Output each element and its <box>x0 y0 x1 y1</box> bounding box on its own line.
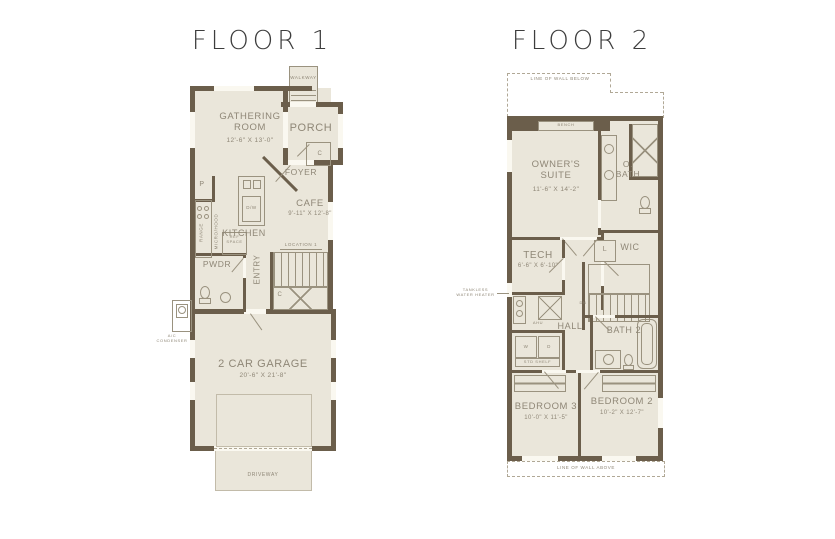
pwdr-door-opening <box>243 258 246 278</box>
line-of-wall-below-label: LINE OF WALL BELOW <box>515 76 605 81</box>
hall-label: HALL <box>550 321 590 331</box>
owners-suite-label: OWNER'S SUITE <box>516 160 596 182</box>
walkway-label: WALKWAY <box>287 75 320 80</box>
dn-label: DN <box>576 301 590 306</box>
dryer-label: D <box>538 344 560 349</box>
bedroom2-label: BEDROOM 2 <box>584 397 660 408</box>
dashed-line-of-wall-below <box>610 73 611 93</box>
island-sink <box>253 180 261 189</box>
porch-entry-opening <box>290 102 316 107</box>
tech-label: TECH <box>508 250 568 262</box>
dashed-line-of-wall-below <box>507 73 610 74</box>
ahu-label: AHU <box>528 321 548 326</box>
bedroom2-dims: 10'-2" X 12'-7" <box>584 410 660 416</box>
stairs-up <box>273 252 328 287</box>
owners-bath-label: O. BATH <box>608 160 648 180</box>
dashed-line-of-wall-below <box>507 73 508 117</box>
bath2-label: BATH 2 <box>596 325 652 335</box>
pwdr-label: PWDR <box>196 260 238 270</box>
ahu-unit <box>538 296 562 320</box>
closet-label: C <box>275 292 285 299</box>
bedroom2-closet <box>602 375 656 392</box>
window <box>190 112 195 148</box>
tankless-dial <box>516 310 523 317</box>
bedroom3-closet <box>514 375 566 392</box>
range-burner <box>204 206 209 211</box>
bedroom3-dims: 10'-0" X 11'-5" <box>508 415 584 421</box>
window <box>214 86 254 91</box>
garage-door-opening <box>244 309 266 314</box>
wall <box>562 333 565 373</box>
range-label: RANGE <box>199 213 208 253</box>
wic-label: WIC <box>612 242 648 252</box>
sink <box>604 144 614 154</box>
suite-door-opening <box>560 237 597 240</box>
dashed-line-of-wall-below <box>663 92 664 118</box>
dishwasher-label: D/W <box>243 205 260 210</box>
stair-location-label: LOCATION 1 <box>275 242 327 247</box>
tankless-pointer-line <box>497 293 509 294</box>
window <box>331 382 336 400</box>
sink <box>220 292 231 303</box>
std-shelf-label: STD SHELF <box>515 360 560 365</box>
stair-location-line <box>280 249 322 250</box>
garage-pad <box>216 394 312 447</box>
floor2-title: FLOOR 2 <box>502 26 662 56</box>
linen-label: L <box>598 246 612 254</box>
driveway-area <box>215 449 312 491</box>
foyer-label: FOYER <box>276 168 326 178</box>
toilet-tank <box>639 208 651 214</box>
obath-door-opening <box>598 200 601 228</box>
floor1-title: FLOOR 1 <box>182 26 342 56</box>
cafe-dims: 9'-11" X 12'-8" <box>280 211 340 217</box>
foyer-closet-label: C <box>314 151 326 158</box>
toilet-tank <box>199 298 211 304</box>
window <box>190 382 195 400</box>
cafe-label: CAFE <box>285 199 335 210</box>
washer-label: W <box>515 344 537 349</box>
ac-condenser-label: A/C CONDENSER <box>150 334 194 343</box>
owners-suite-dims: 11'-6" X 14'-2" <box>516 186 596 193</box>
bedroom3-label: BEDROOM 3 <box>508 402 584 413</box>
sink <box>603 354 614 365</box>
wall <box>590 318 593 372</box>
entry-label: ENTRY <box>253 250 264 290</box>
window <box>331 340 336 358</box>
garage-label: 2 CAR GARAGE <box>200 358 326 371</box>
tankless-water-heater-label: TANKLESS WATER HEATER <box>448 288 503 297</box>
bench-label: BENCH <box>543 123 589 128</box>
tech-dims: 6'-6" X 6'-10" <box>508 263 568 269</box>
ac-condenser-fan-circle <box>178 306 186 314</box>
garage-bay-dashed-line <box>214 448 312 449</box>
island-sink <box>243 180 251 189</box>
driveway-label: DRIVEWAY <box>228 473 298 479</box>
pantry-label: P <box>196 181 208 189</box>
tankless-dial <box>516 300 523 307</box>
wall <box>582 262 585 330</box>
wall <box>512 292 565 295</box>
dashed-line-of-wall-below <box>610 92 663 93</box>
kitchen-label: KITCHEN <box>213 228 275 238</box>
bench-wall <box>594 121 610 131</box>
gathering-room-label: GATHERING ROOM <box>200 112 300 134</box>
range-burner <box>197 206 202 211</box>
wall <box>601 230 661 233</box>
gathering-room-dims: 12'-6" X 13'-0" <box>200 137 300 144</box>
bench-wall <box>512 121 538 131</box>
garage-dims: 20'-6" X 21'-8" <box>213 372 313 379</box>
stair-opening <box>588 264 650 294</box>
window <box>507 140 512 172</box>
line-of-wall-above-label: LINE OF WALL ABOVE <box>530 465 642 470</box>
